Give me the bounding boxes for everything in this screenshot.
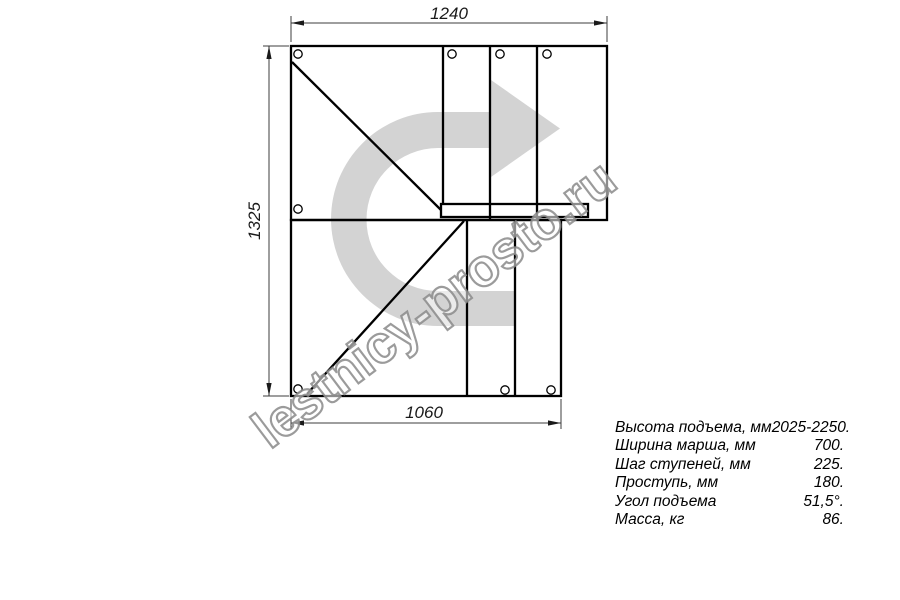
dim-arrowhead-icon xyxy=(594,20,607,25)
spec-value: 51,5°. xyxy=(803,493,844,511)
spec-row: Масса, кг 86. xyxy=(615,511,844,529)
spec-row: Высота подъема, мм 2025-2250. xyxy=(615,419,844,437)
dimension-bottom-value: 1060 xyxy=(405,403,443,422)
dim-arrowhead-icon xyxy=(548,420,561,425)
mounting-hole-icon xyxy=(496,50,504,58)
spec-row: Шаг ступеней, мм 225. xyxy=(615,456,844,474)
stair-drawing-page: 1240 1325 1060 lestnicy-prosto.ru Высота… xyxy=(0,0,900,600)
mounting-hole-icon xyxy=(294,205,302,213)
spec-label: Угол подъема xyxy=(615,493,716,511)
mounting-hole-icon xyxy=(294,50,302,58)
spec-row: Угол подъема 51,5°. xyxy=(615,493,844,511)
dim-arrowhead-icon xyxy=(266,46,271,59)
spec-value: 86. xyxy=(822,511,844,529)
spec-label: Шаг ступеней, мм xyxy=(615,456,751,474)
spec-value: 700. xyxy=(814,437,844,455)
spec-label: Масса, кг xyxy=(615,511,684,529)
spec-label: Проступь, мм xyxy=(615,474,718,492)
mounting-hole-icon xyxy=(547,386,555,394)
mounting-hole-icon xyxy=(448,50,456,58)
spec-row: Ширина марша, мм 700. xyxy=(615,437,844,455)
spec-value: 225. xyxy=(814,456,844,474)
spec-value: 180. xyxy=(814,474,844,492)
spec-table: Высота подъема, мм 2025-2250. Ширина мар… xyxy=(615,419,844,529)
dimension-top-value: 1240 xyxy=(430,4,468,23)
spec-row: Проступь, мм 180. xyxy=(615,474,844,492)
spec-value: 2025-2250. xyxy=(772,419,850,437)
dim-arrowhead-icon xyxy=(291,20,304,25)
mounting-hole-icon xyxy=(501,386,509,394)
mounting-hole-icon xyxy=(543,50,551,58)
spec-label: Высота подъема, мм xyxy=(615,419,772,437)
spec-label: Ширина марша, мм xyxy=(615,437,756,455)
dimension-left-value: 1325 xyxy=(245,202,264,240)
